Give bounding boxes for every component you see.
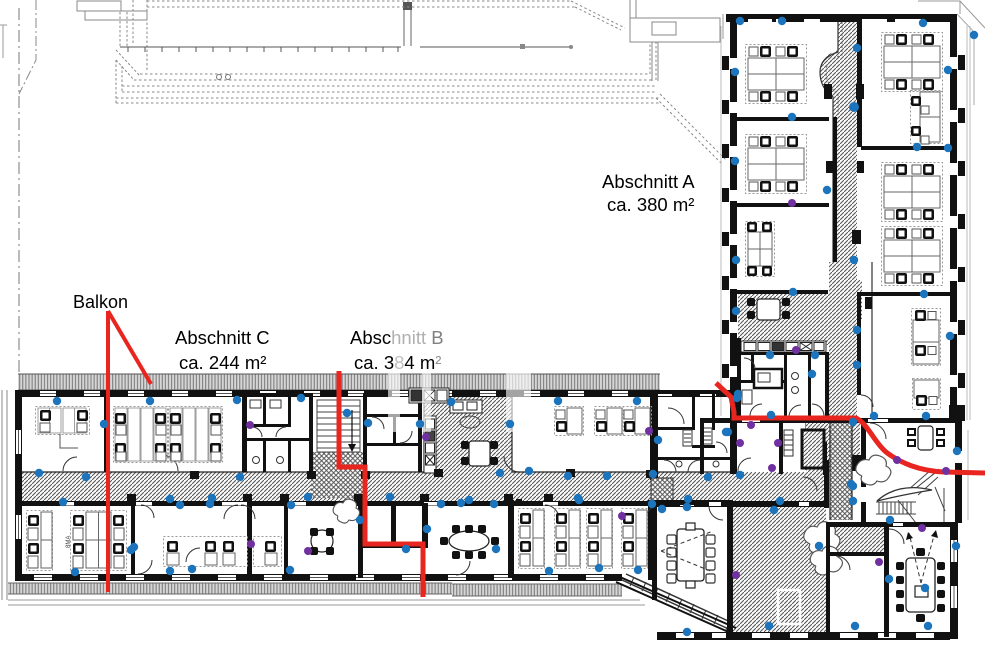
svg-text:Balkon: Balkon <box>73 292 128 312</box>
svg-text:8MA: 8MA <box>66 536 72 548</box>
svg-text:ca. 244 m²: ca. 244 m² <box>179 352 266 373</box>
svg-text:ca. 384 m²: ca. 384 m² <box>354 352 441 373</box>
svg-text:Abschnitt C: Abschnitt C <box>175 327 270 348</box>
svg-text:ca. 380 m²: ca. 380 m² <box>607 194 694 215</box>
svg-text:Abschnitt A: Abschnitt A <box>602 171 695 192</box>
svg-text:Abschnitt B: Abschnitt B <box>350 327 444 348</box>
